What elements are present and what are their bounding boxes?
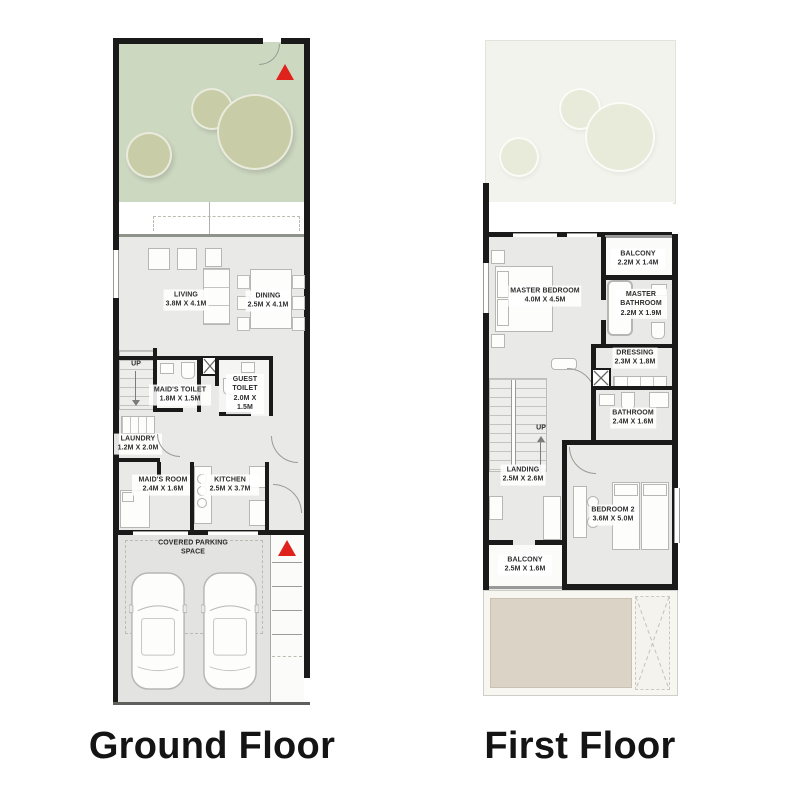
room-name: GUEST TOILET	[228, 375, 262, 394]
first-floor-plan: BALCONY 2.2M X 1.4M MASTER BEDROOM 4.0M …	[483, 38, 678, 710]
room-dims: 2.3M X 1.8M	[615, 358, 656, 367]
pillow	[497, 271, 509, 298]
room-label-kitchen: KITCHEN 2.5M X 3.7M	[201, 475, 259, 496]
wall	[265, 462, 269, 530]
room-name: MASTER BEDROOM	[510, 287, 579, 296]
nightstand	[491, 334, 505, 348]
room-label-master-bedroom: MASTER BEDROOM 4.0M X 4.5M	[508, 286, 581, 307]
car-icon	[201, 564, 259, 698]
room-label-guest-toilet: GUEST TOILET 2.0M X 1.5M	[226, 374, 264, 414]
tree-icon	[217, 94, 293, 170]
nightstand	[491, 250, 505, 264]
chair	[237, 275, 250, 289]
window	[113, 250, 119, 298]
wall	[116, 458, 160, 462]
room-name: MAID'S TOILET	[151, 386, 209, 395]
room-label-parking: COVERED PARKING SPACE	[156, 538, 230, 559]
tree-icon	[126, 132, 172, 178]
chair	[237, 317, 250, 331]
entry-step	[272, 586, 302, 587]
room-dims: 3.8M X 4.1M	[166, 300, 207, 309]
toilet	[181, 362, 195, 379]
pillow	[497, 299, 509, 326]
washing-machine	[121, 416, 155, 434]
room-label-maids-toilet: MAID'S TOILET 1.8M X 1.5M	[149, 385, 211, 406]
room-dims: 2.4M X 1.6M	[134, 485, 192, 494]
balcony-rail	[605, 235, 672, 238]
toilet	[651, 322, 665, 339]
ground-floor-title: Ground Floor	[62, 725, 362, 768]
entry-walkway	[270, 535, 304, 703]
tree-icon	[585, 102, 655, 172]
entry-step	[272, 562, 302, 563]
balcony-rail	[489, 586, 562, 589]
ground-floor-plan: LIVING 3.8M X 4.1M DINING 2.5M X 4.1M UP…	[113, 38, 310, 710]
room-dims: 1.2M X 2.0M	[116, 444, 160, 453]
wall	[562, 440, 672, 445]
room-name: BATHROOM	[612, 409, 654, 418]
room-dims: 2.2M X 1.4M	[613, 259, 663, 268]
room-name: LAUNDRY	[116, 435, 160, 444]
plan-edge	[113, 702, 310, 705]
room-dims: 3.6M X 5.0M	[591, 515, 634, 524]
room-label-balcony-master: BALCONY 2.2M X 1.4M	[611, 249, 665, 270]
room-dims: 4.0M X 4.5M	[510, 296, 579, 305]
room-label-master-bathroom: MASTER BATHROOM 2.2M X 1.9M	[615, 289, 667, 319]
shower	[649, 392, 669, 408]
room-label-dressing: DRESSING 2.3M X 1.8M	[613, 348, 658, 369]
entry-step	[272, 610, 302, 611]
wall	[591, 344, 596, 370]
room-label-living: LIVING 3.8M X 4.1M	[164, 290, 209, 311]
open-to-below-panel	[635, 596, 670, 690]
stairs-direction-line	[135, 371, 136, 401]
terrace	[486, 202, 673, 232]
room-label-dining: DINING 2.5M X 4.1M	[246, 291, 291, 312]
room-label-laundry: LAUNDRY 1.2M X 2.0M	[114, 434, 162, 455]
sofa	[177, 248, 197, 270]
room-label-bedroom2: BEDROOM 2 3.6M X 5.0M	[589, 505, 636, 526]
wall	[601, 320, 606, 345]
room-dims: 2.5M X 1.6M	[500, 565, 550, 574]
up-label: UP	[131, 361, 141, 368]
sofa	[543, 496, 561, 540]
room-dims: 2.5M X 2.6M	[503, 475, 544, 484]
sofa	[148, 248, 170, 270]
room-dims: 2.2M X 1.9M	[617, 309, 665, 318]
room-name: LIVING	[166, 291, 207, 300]
room-name: DINING	[248, 292, 289, 301]
stairs-rail	[511, 380, 516, 468]
entry-arrow-icon	[276, 64, 294, 80]
stairs-direction-arrow	[132, 400, 140, 406]
entry-step	[272, 634, 302, 635]
entry-arrow-icon	[278, 540, 296, 556]
room-label-maids-room: MAID'S ROOM 2.4M X 1.6M	[132, 475, 194, 496]
armchair	[489, 496, 503, 520]
wall	[591, 386, 672, 390]
chair	[292, 317, 305, 331]
tree-icon	[499, 137, 539, 177]
dashed-boundary	[153, 216, 300, 231]
wall	[601, 280, 606, 300]
desk	[573, 486, 587, 538]
window	[674, 488, 680, 543]
car-icon	[129, 564, 187, 698]
room-name: MAID'S ROOM	[134, 476, 192, 485]
armchair	[205, 248, 222, 267]
sink	[599, 394, 615, 406]
room-name: LANDING	[503, 466, 544, 475]
sink	[241, 362, 255, 373]
room-name: COVERED PARKING SPACE	[158, 539, 228, 558]
wall	[304, 38, 310, 678]
pillow	[643, 484, 667, 496]
room-name: BALCONY	[500, 556, 550, 565]
wall	[562, 440, 567, 590]
room-name: MASTER BATHROOM	[617, 290, 665, 309]
wall	[601, 237, 606, 279]
dashed-boundary	[272, 656, 302, 657]
room-label-balcony2: BALCONY 2.5M X 1.6M	[498, 555, 552, 576]
room-name: KITCHEN	[203, 476, 257, 485]
wall	[269, 356, 273, 416]
room-name: DRESSING	[615, 349, 656, 358]
room-dims: 2.5M X 3.7M	[203, 485, 257, 494]
stairs-direction-arrow	[537, 436, 545, 442]
wall	[157, 408, 183, 412]
divider	[209, 202, 210, 234]
wall	[591, 386, 596, 440]
room-dims: 2.0M X 1.5M	[228, 394, 262, 413]
room-name: BEDROOM 2	[591, 506, 634, 515]
first-floor-title: First Floor	[435, 725, 725, 768]
room-label-landing: LANDING 2.5M X 2.6M	[501, 465, 546, 486]
room-label-bathroom: BATHROOM 2.4M X 1.6M	[610, 408, 656, 429]
wall	[113, 38, 263, 44]
up-label: UP	[536, 425, 546, 432]
room-dims: 2.5M X 4.1M	[248, 301, 289, 310]
room-dims: 2.4M X 1.6M	[612, 418, 654, 427]
stove-burner	[197, 498, 207, 508]
roof-sand-area	[490, 598, 632, 688]
sink	[160, 363, 174, 374]
chair	[292, 275, 305, 289]
divider	[270, 535, 271, 703]
shaft-x-icon	[591, 368, 611, 388]
pillow	[614, 484, 638, 496]
room-dims: 1.8M X 1.5M	[151, 395, 209, 404]
chair	[292, 296, 305, 310]
room-name: BALCONY	[613, 250, 663, 259]
floor-plan-sheet: { "ground_floor": { "title": "Ground Flo…	[0, 0, 800, 800]
